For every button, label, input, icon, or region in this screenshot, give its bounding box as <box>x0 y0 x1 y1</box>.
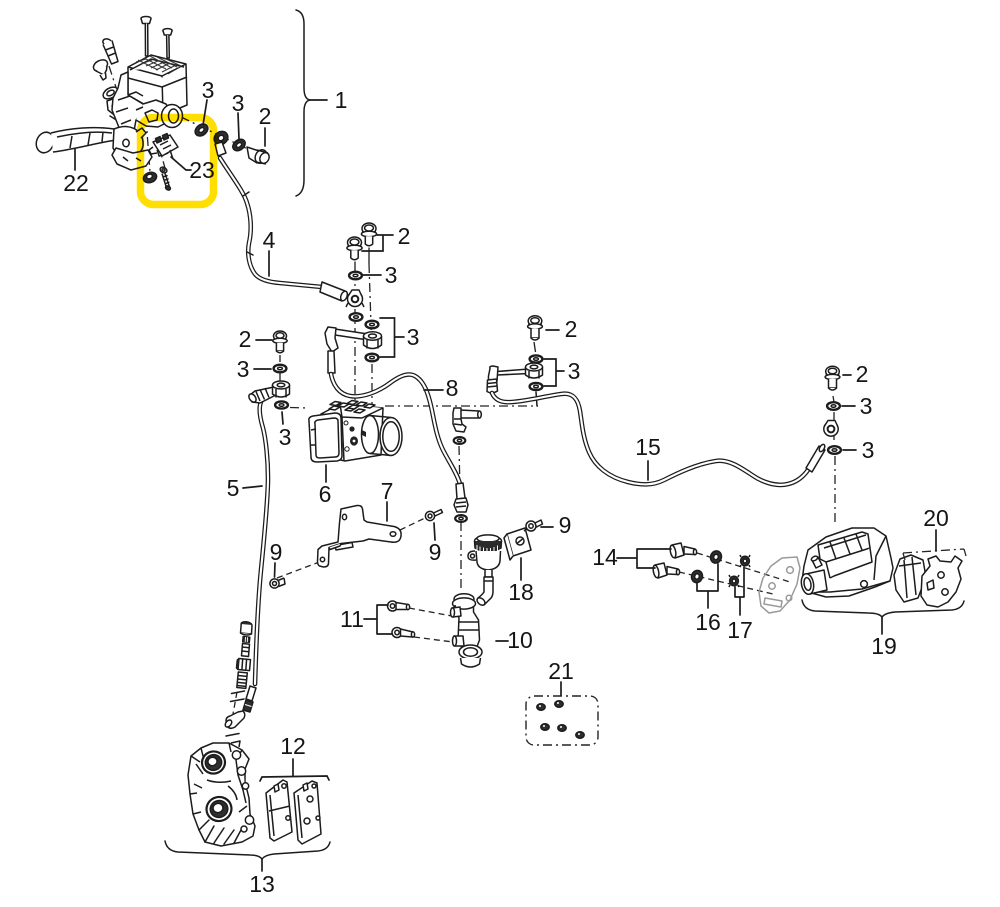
svg-text:3: 3 <box>279 424 292 450</box>
svg-text:3: 3 <box>202 77 215 103</box>
svg-text:3: 3 <box>232 90 245 116</box>
svg-text:9: 9 <box>559 512 572 538</box>
svg-text:18: 18 <box>508 579 534 605</box>
svg-text:15: 15 <box>635 434 661 460</box>
svg-text:22: 22 <box>63 170 89 196</box>
svg-text:2: 2 <box>856 361 869 387</box>
svg-text:1: 1 <box>335 87 348 113</box>
svg-text:4: 4 <box>263 227 276 253</box>
svg-text:2: 2 <box>565 316 578 342</box>
svg-text:21: 21 <box>548 658 574 684</box>
svg-text:14: 14 <box>592 544 618 570</box>
svg-text:2: 2 <box>259 103 272 129</box>
svg-text:10: 10 <box>507 627 533 653</box>
svg-text:8: 8 <box>446 375 459 401</box>
svg-text:3: 3 <box>385 262 398 288</box>
svg-text:3: 3 <box>568 358 581 384</box>
svg-text:9: 9 <box>270 539 283 565</box>
svg-text:20: 20 <box>923 505 949 531</box>
svg-text:17: 17 <box>727 617 753 643</box>
svg-text:3: 3 <box>862 437 875 463</box>
svg-text:16: 16 <box>695 609 721 635</box>
svg-text:6: 6 <box>319 481 332 507</box>
svg-text:12: 12 <box>280 733 306 759</box>
svg-text:2: 2 <box>398 223 411 249</box>
svg-text:19: 19 <box>871 633 897 659</box>
svg-text:3: 3 <box>407 324 420 350</box>
svg-text:11: 11 <box>340 606 364 632</box>
svg-text:3: 3 <box>237 356 250 382</box>
svg-text:7: 7 <box>381 478 394 504</box>
svg-text:3: 3 <box>860 393 873 419</box>
svg-text:2: 2 <box>239 326 252 352</box>
svg-text:5: 5 <box>227 475 240 501</box>
svg-text:13: 13 <box>249 871 275 897</box>
svg-text:9: 9 <box>429 539 442 565</box>
